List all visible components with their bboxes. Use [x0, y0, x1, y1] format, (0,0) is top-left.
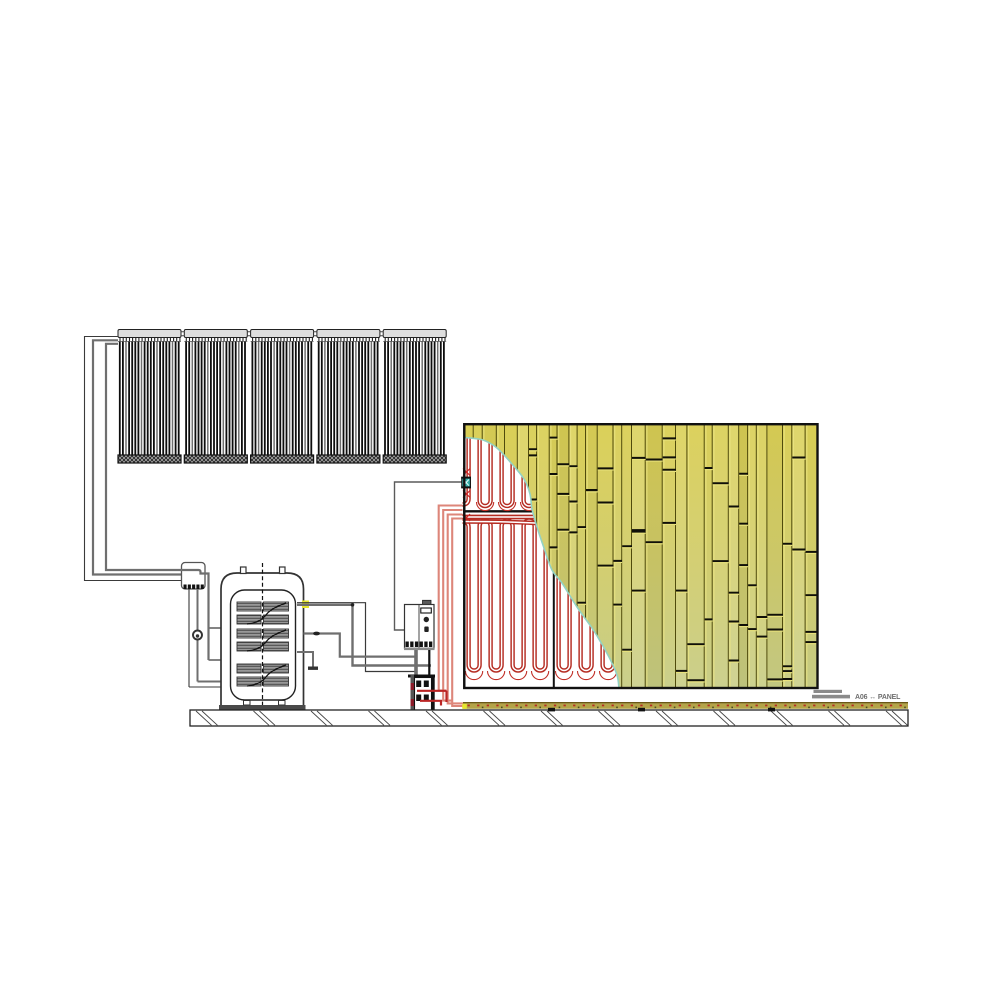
svg-text:A06 ↔ PANEL: A06 ↔ PANEL	[855, 694, 901, 701]
